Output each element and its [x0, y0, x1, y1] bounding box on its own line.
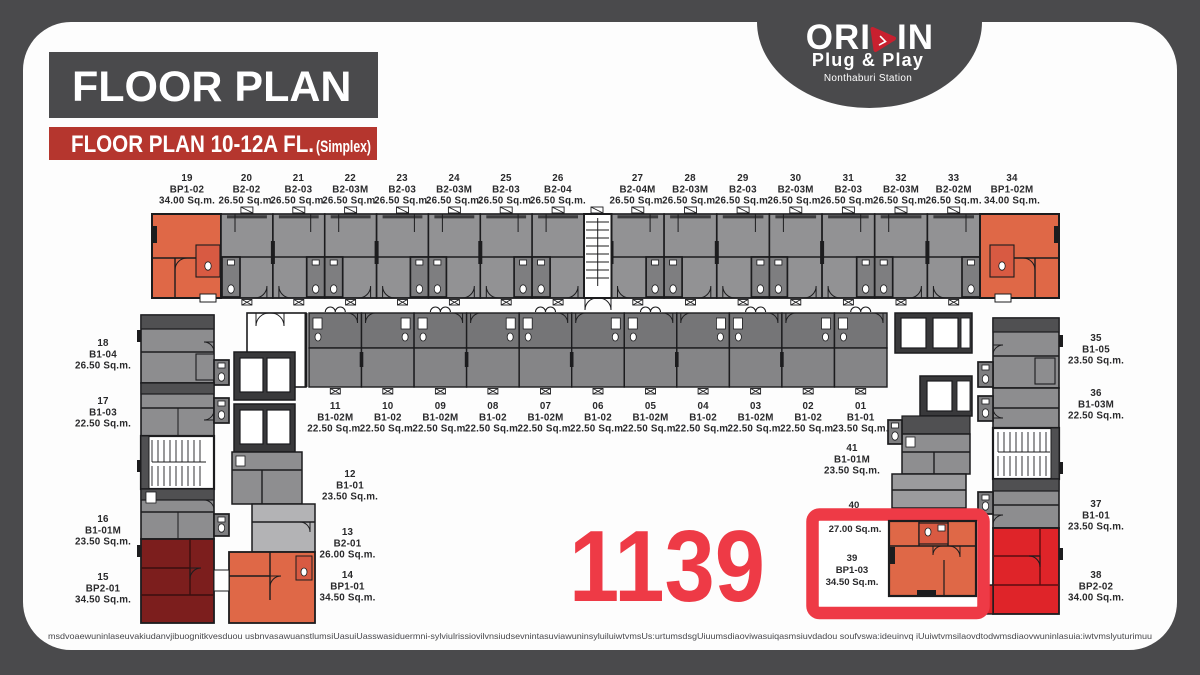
- svg-text:07: 07: [540, 401, 552, 412]
- svg-text:B2-03: B2-03: [388, 184, 416, 195]
- svg-text:34.00 Sq.m.: 34.00 Sq.m.: [984, 196, 1040, 207]
- svg-text:B1-02: B1-02: [374, 412, 402, 423]
- svg-text:04: 04: [697, 401, 709, 412]
- svg-text:10: 10: [382, 401, 394, 412]
- svg-text:26.50 Sq.m.: 26.50 Sq.m.: [530, 196, 586, 207]
- svg-text:22.50 Sq.m.: 22.50 Sq.m.: [75, 419, 131, 430]
- svg-text:Nonthaburi Station: Nonthaburi Station: [824, 73, 912, 84]
- svg-text:34: 34: [1006, 173, 1018, 184]
- svg-text:26.50 Sq.m.: 26.50 Sq.m.: [374, 196, 430, 207]
- svg-text:39: 39: [847, 553, 858, 564]
- svg-text:22.50 Sq.m.: 22.50 Sq.m.: [465, 424, 521, 435]
- svg-text:FLOOR PLAN: FLOOR PLAN: [72, 63, 351, 111]
- svg-text:36: 36: [1090, 388, 1102, 399]
- svg-text:26.50 Sq.m.: 26.50 Sq.m.: [478, 196, 534, 207]
- svg-text:26.50 Sq.m.: 26.50 Sq.m.: [926, 196, 982, 207]
- svg-text:BP1-02M: BP1-02M: [991, 184, 1034, 195]
- svg-text:B1-02: B1-02: [584, 412, 612, 423]
- svg-text:B2-04: B2-04: [544, 184, 572, 195]
- svg-text:22.50 Sq.m.: 22.50 Sq.m.: [675, 424, 731, 435]
- svg-text:01: 01: [855, 401, 867, 412]
- svg-text:11: 11: [330, 401, 341, 412]
- svg-text:B1-01: B1-01: [336, 480, 364, 491]
- svg-text:B2-03: B2-03: [285, 184, 313, 195]
- svg-text:22.50 Sq.m.: 22.50 Sq.m.: [307, 424, 363, 435]
- svg-text:B1-01M: B1-01M: [85, 525, 121, 536]
- svg-text:16: 16: [97, 514, 109, 525]
- svg-text:35: 35: [1090, 333, 1102, 344]
- svg-text:23.50 Sq.m.: 23.50 Sq.m.: [75, 537, 131, 548]
- svg-text:23.50 Sq.m.: 23.50 Sq.m.: [322, 492, 378, 503]
- svg-text:B2-03: B2-03: [834, 184, 862, 195]
- svg-text:31: 31: [843, 173, 855, 184]
- svg-text:22.50 Sq.m.: 22.50 Sq.m.: [1068, 411, 1124, 422]
- svg-text:26.50 Sq.m.: 26.50 Sq.m.: [662, 196, 718, 207]
- svg-text:BP1-01: BP1-01: [330, 581, 365, 592]
- svg-text:23.50 Sq.m.: 23.50 Sq.m.: [1068, 356, 1124, 367]
- svg-text:BP1-02: BP1-02: [170, 184, 205, 195]
- svg-text:29: 29: [737, 173, 749, 184]
- svg-text:37: 37: [1090, 499, 1102, 510]
- svg-text:B2-01: B2-01: [334, 538, 362, 549]
- svg-text:17: 17: [97, 396, 109, 407]
- svg-text:B1-02: B1-02: [689, 412, 717, 423]
- svg-text:30: 30: [790, 173, 802, 184]
- svg-text:23.50 Sq.m.: 23.50 Sq.m.: [833, 424, 889, 435]
- svg-text:25: 25: [500, 173, 512, 184]
- svg-text:22.50 Sq.m.: 22.50 Sq.m.: [570, 424, 626, 435]
- svg-text:22: 22: [345, 173, 357, 184]
- svg-text:26: 26: [552, 173, 564, 184]
- svg-text:26.50 Sq.m.: 26.50 Sq.m.: [768, 196, 824, 207]
- svg-text:23: 23: [397, 173, 409, 184]
- svg-text:B1-02M: B1-02M: [527, 412, 563, 423]
- svg-text:22.50 Sq.m.: 22.50 Sq.m.: [412, 424, 468, 435]
- svg-text:B2-02M: B2-02M: [936, 184, 972, 195]
- svg-text:B1-01: B1-01: [1082, 510, 1110, 521]
- svg-text:23.50 Sq.m.: 23.50 Sq.m.: [824, 466, 880, 477]
- svg-text:06: 06: [592, 401, 604, 412]
- svg-text:B2-03M: B2-03M: [672, 184, 708, 195]
- svg-text:19: 19: [181, 173, 193, 184]
- svg-text:08: 08: [487, 401, 499, 412]
- svg-text:26.50 Sq.m.: 26.50 Sq.m.: [426, 196, 482, 207]
- svg-text:15: 15: [97, 572, 109, 583]
- svg-text:41: 41: [846, 443, 858, 454]
- svg-text:B1-03: B1-03: [89, 407, 117, 418]
- svg-text:24: 24: [448, 173, 460, 184]
- svg-text:B1-04: B1-04: [89, 349, 117, 360]
- svg-text:B2-03M: B2-03M: [883, 184, 919, 195]
- svg-text:Plug & Play: Plug & Play: [812, 50, 924, 70]
- svg-text:1139: 1139: [569, 511, 765, 623]
- svg-text:28: 28: [685, 173, 697, 184]
- svg-text:03: 03: [750, 401, 762, 412]
- svg-text:B2-03M: B2-03M: [778, 184, 814, 195]
- svg-text:21: 21: [293, 173, 305, 184]
- svg-text:22.50 Sq.m.: 22.50 Sq.m.: [622, 424, 678, 435]
- svg-text:12: 12: [344, 469, 356, 480]
- svg-text:09: 09: [435, 401, 447, 412]
- svg-text:26.50 Sq.m.: 26.50 Sq.m.: [820, 196, 876, 207]
- svg-text:26.50 Sq.m.: 26.50 Sq.m.: [218, 196, 274, 207]
- svg-text:26.50 Sq.m.: 26.50 Sq.m.: [270, 196, 326, 207]
- svg-text:26.50 Sq.m.: 26.50 Sq.m.: [873, 196, 929, 207]
- svg-text:B1-01M: B1-01M: [834, 454, 870, 465]
- svg-text:14: 14: [342, 570, 354, 581]
- svg-text:27: 27: [632, 173, 644, 184]
- svg-text:34.00 Sq.m.: 34.00 Sq.m.: [159, 196, 215, 207]
- svg-text:26.50 Sq.m.: 26.50 Sq.m.: [609, 196, 665, 207]
- svg-text:BP2-01: BP2-01: [86, 583, 121, 594]
- svg-text:B1-01: B1-01: [847, 412, 875, 423]
- svg-text:38: 38: [1090, 570, 1102, 581]
- svg-text:B1-02M: B1-02M: [738, 412, 774, 423]
- svg-text:22.50 Sq.m.: 22.50 Sq.m.: [780, 424, 836, 435]
- svg-text:34.00 Sq.m.: 34.00 Sq.m.: [1068, 593, 1124, 604]
- svg-text:B1-02M: B1-02M: [422, 412, 458, 423]
- svg-text:B2-03M: B2-03M: [332, 184, 368, 195]
- svg-text:B1-02: B1-02: [794, 412, 822, 423]
- svg-text:BP1-03: BP1-03: [836, 565, 869, 576]
- svg-text:B2-03: B2-03: [492, 184, 520, 195]
- svg-text:B2-04M: B2-04M: [619, 184, 655, 195]
- svg-text:B2-02: B2-02: [233, 184, 261, 195]
- svg-text:22.50 Sq.m.: 22.50 Sq.m.: [360, 424, 416, 435]
- svg-text:20: 20: [241, 173, 253, 184]
- svg-text:22.50 Sq.m.: 22.50 Sq.m.: [517, 424, 573, 435]
- svg-text:B2-03: B2-03: [729, 184, 757, 195]
- svg-text:26.50 Sq.m.: 26.50 Sq.m.: [322, 196, 378, 207]
- svg-text:05: 05: [645, 401, 657, 412]
- svg-text:B1-03M: B1-03M: [1078, 399, 1114, 410]
- svg-text:33: 33: [948, 173, 960, 184]
- svg-text:34.50 Sq.m.: 34.50 Sq.m.: [826, 577, 879, 588]
- svg-text:msdvoaewuninlaseuvakiudanvjibu: msdvoaewuninlaseuvakiudanvjibuognitkvesd…: [48, 631, 1152, 641]
- svg-text:22.50 Sq.m.: 22.50 Sq.m.: [728, 424, 784, 435]
- svg-text:26.50 Sq.m.: 26.50 Sq.m.: [75, 361, 131, 372]
- svg-text:26.50 Sq.m.: 26.50 Sq.m.: [715, 196, 771, 207]
- svg-text:(Simplex): (Simplex): [316, 137, 371, 156]
- svg-text:27.00 Sq.m.: 27.00 Sq.m.: [829, 524, 882, 535]
- svg-text:34.50 Sq.m.: 34.50 Sq.m.: [319, 593, 375, 604]
- svg-text:B1-02: B1-02: [479, 412, 507, 423]
- svg-text:13: 13: [342, 527, 354, 538]
- svg-text:18: 18: [97, 338, 109, 349]
- svg-text:B2-03M: B2-03M: [436, 184, 472, 195]
- svg-text:23.50 Sq.m.: 23.50 Sq.m.: [1068, 522, 1124, 533]
- svg-text:B1-02M: B1-02M: [632, 412, 668, 423]
- svg-text:B1-05: B1-05: [1082, 344, 1110, 355]
- svg-text:B1-02M: B1-02M: [317, 412, 353, 423]
- svg-text:32: 32: [895, 173, 907, 184]
- svg-text:34.50 Sq.m.: 34.50 Sq.m.: [75, 595, 131, 606]
- svg-text:26.00 Sq.m.: 26.00 Sq.m.: [319, 550, 375, 561]
- svg-text:BP2-02: BP2-02: [1079, 581, 1114, 592]
- svg-text:FLOOR PLAN 10-12A FL.: FLOOR PLAN 10-12A FL.: [71, 131, 314, 158]
- svg-text:02: 02: [803, 401, 815, 412]
